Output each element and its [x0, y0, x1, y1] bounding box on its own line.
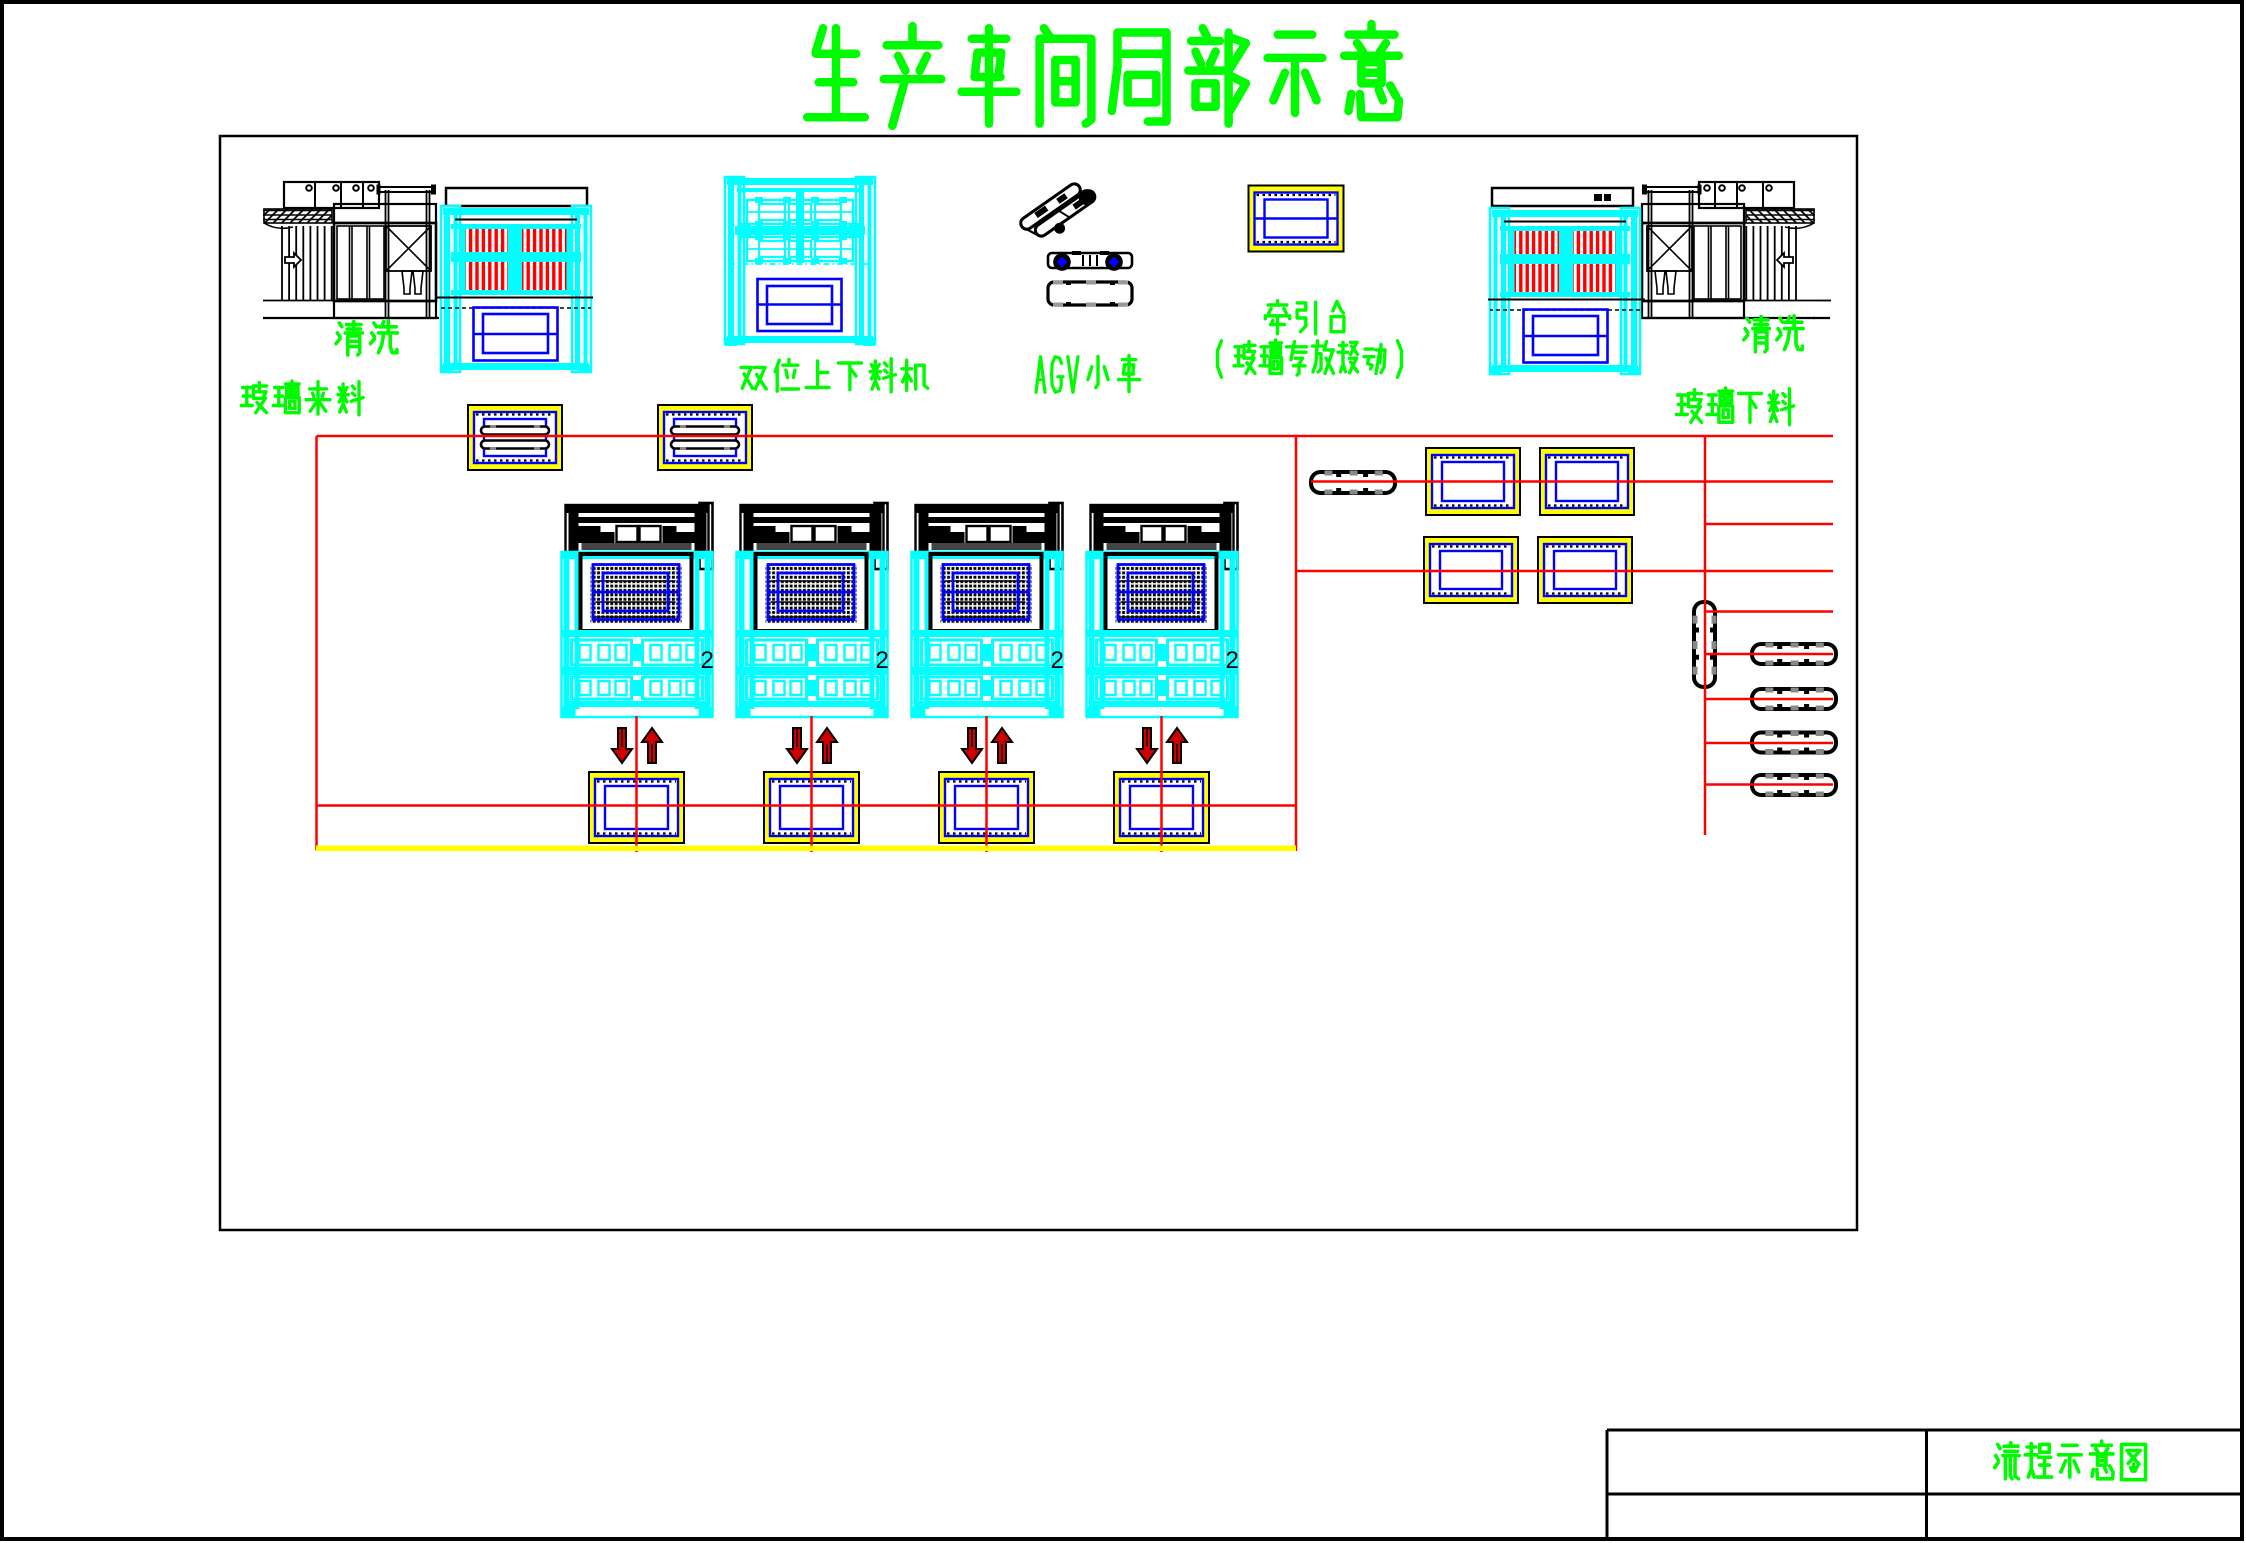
svg-text:2: 2 — [1051, 647, 1064, 674]
svg-text:2: 2 — [701, 647, 714, 674]
svg-text:2: 2 — [876, 647, 889, 674]
svg-text:2: 2 — [1226, 647, 1239, 674]
